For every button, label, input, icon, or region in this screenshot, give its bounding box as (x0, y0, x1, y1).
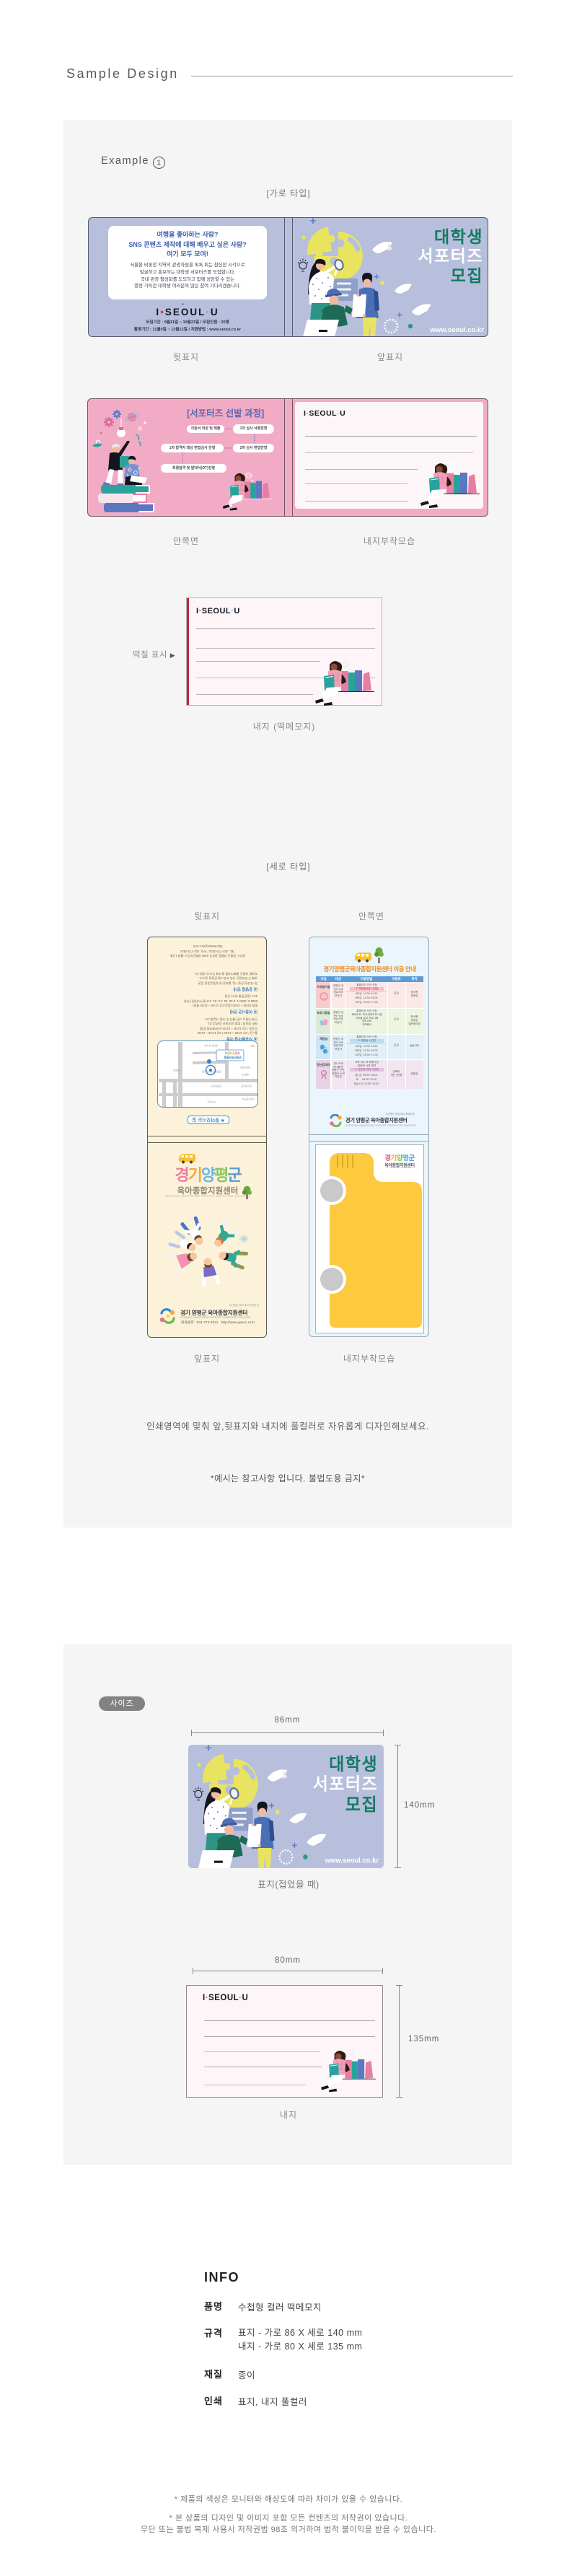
svg-text:교현초등학교: 교현초등학교 (242, 1098, 255, 1101)
svg-text:www.seoul.co.kr: www.seoul.co.kr (429, 326, 484, 334)
svg-text:마트: 마트 (250, 1044, 255, 1048)
svg-text:도곡삼수: 도곡삼수 (207, 1100, 216, 1104)
svg-text:경강로 삼수길: 경강로 삼수길 (204, 1044, 218, 1048)
svg-text:청운아파트: 청운아파트 (239, 1066, 250, 1069)
svg-text:양평-역: 양평-역 (242, 1073, 249, 1077)
svg-text:서포터즈: 서포터즈 (418, 247, 483, 266)
svg-text:양평보건소: 양평보건소 (211, 1085, 221, 1088)
svg-text:모집: 모집 (451, 266, 483, 285)
svg-text:대학생: 대학생 (434, 227, 483, 246)
svg-text:남한강로변: 남한강로변 (241, 1085, 252, 1088)
